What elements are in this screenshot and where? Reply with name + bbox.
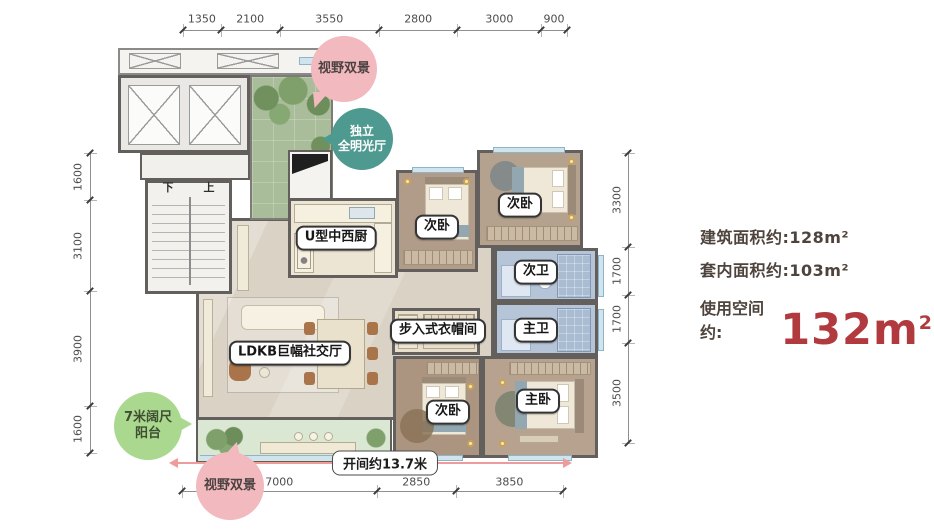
bench: [519, 435, 559, 443]
side-table: [259, 367, 270, 378]
headboard: [568, 165, 576, 215]
badge-bright-hall: 独立 全明光厅: [331, 108, 393, 170]
dim-label-bottom-1: 2850: [402, 476, 430, 489]
vent-box-icon: [129, 53, 181, 69]
dim-label-top-3: 2800: [404, 13, 432, 26]
window: [493, 147, 565, 153]
span-arrow-right-icon: [563, 458, 572, 468]
badge-view-bottom: 视野双景: [196, 452, 264, 520]
dim-label-left-0: 1600: [72, 163, 85, 191]
usage-label: 使用空间约:: [700, 295, 780, 349]
dining-chair: [367, 372, 378, 385]
badge-balcony-line1: 7米阔尺: [124, 410, 172, 426]
dim-label-bottom-2: 3850: [495, 476, 523, 489]
pillow: [552, 191, 564, 208]
dim-label-right-1: 1700: [611, 257, 624, 285]
dim-label-bottom-0: 7000: [265, 476, 293, 489]
kitchen-counter-top: [294, 204, 392, 223]
inner-area-value: 103m²: [789, 261, 849, 280]
label-bedroom-top-right: 次卧: [498, 193, 542, 218]
label-bedroom-top-mid: 次卧: [415, 215, 459, 240]
dining-chair: [304, 322, 315, 335]
downlight-icon: [463, 178, 470, 185]
window: [598, 255, 604, 297]
dim-line-right: [628, 153, 629, 443]
stair-up-label: 上: [204, 179, 215, 195]
shelf: [237, 225, 249, 291]
downlight-icon: [568, 158, 575, 165]
downlight-icon: [404, 178, 411, 185]
wardrobe: [426, 362, 479, 375]
label-bath-master: 主卫: [514, 318, 558, 343]
dim-label-right-2: 1700: [611, 305, 624, 333]
pillow: [445, 386, 459, 398]
window: [412, 167, 464, 173]
area-row: 建筑面积约:128m²: [700, 224, 932, 248]
inner-area-label: 套内面积约:: [700, 261, 789, 280]
pillow: [426, 386, 440, 398]
dining-chair: [304, 372, 315, 385]
label-kitchen: U型中西厨: [296, 226, 377, 251]
dim-label-top-5: 900: [544, 13, 565, 26]
pillow: [552, 170, 564, 187]
duct-room: [288, 150, 332, 200]
dim-label-top-4: 3000: [485, 13, 513, 26]
stairwell: [145, 180, 232, 294]
area-value: 128m²: [789, 228, 849, 247]
wardrobe: [509, 362, 591, 375]
area-label: 建筑面积约:: [700, 228, 789, 247]
tv-cabinet: [203, 299, 213, 397]
dim-label-top-0: 1350: [188, 13, 216, 26]
shower: [557, 254, 591, 298]
elevator-shaft-icon: [189, 85, 241, 145]
dim-label-top-1: 2100: [236, 13, 264, 26]
dim-label-right-3: 3500: [611, 379, 624, 407]
dim-label-left-1: 3100: [72, 232, 85, 260]
downlight-icon: [499, 440, 506, 447]
badge-view-top: 视野双景: [311, 36, 377, 102]
shower: [557, 308, 591, 352]
dining-chair: [367, 347, 378, 360]
cup: [324, 432, 333, 441]
dim-label-left-3: 1600: [72, 415, 85, 443]
kitchen-counter-right: [374, 223, 392, 273]
window: [598, 309, 604, 351]
pillow: [448, 187, 462, 200]
vent-strip: [118, 48, 333, 75]
inner-area-row: 套内面积约:103m²: [700, 257, 932, 281]
badge-view-bottom-text: 视野双景: [204, 478, 256, 494]
wardrobe: [486, 226, 578, 241]
downlight-icon: [467, 440, 474, 447]
badge-balcony: 7米阔尺 阳台: [114, 392, 182, 460]
pillow: [429, 187, 443, 200]
badge-view-top-text: 视野双景: [318, 61, 370, 77]
dining-chair: [367, 322, 378, 335]
floor-plan-page: 下 上: [0, 0, 934, 529]
cup: [294, 432, 303, 441]
downlight-icon: [568, 214, 575, 221]
dim-label-top-2: 3550: [315, 13, 343, 26]
downlight-icon: [499, 379, 506, 386]
badge-bright-hall-line2: 全明光厅: [338, 139, 386, 154]
entry-hall: [140, 153, 250, 180]
kitchen-sink: [349, 207, 375, 219]
wardrobe: [403, 250, 473, 265]
downlight-icon: [467, 383, 474, 390]
info-panel: 建筑面积约:128m² 套内面积约:103m² 使用空间约: 132m 2: [700, 224, 932, 349]
label-bath-second: 次卫: [514, 260, 558, 285]
usage-sup: 2: [919, 314, 932, 333]
vent-box-icon: [217, 53, 279, 69]
headboard: [575, 379, 584, 433]
stair-divider: [189, 197, 191, 285]
dim-label-left-2: 3900: [72, 335, 85, 363]
usage-value: 132m: [780, 312, 919, 349]
label-bedroom-master: 主卧: [516, 389, 560, 414]
dim-label-right-0: 3300: [611, 186, 624, 214]
label-bedroom-bottom: 次卧: [426, 400, 470, 425]
label-living: LDKB巨幅社交厅: [229, 341, 351, 366]
usage-row: 使用空间约: 132m 2: [700, 295, 932, 349]
cup: [309, 432, 318, 441]
stair-down-label: 下: [163, 179, 174, 195]
plant: [364, 428, 388, 448]
duct-shaft: [292, 154, 328, 174]
badge-bright-hall-line1: 独立: [350, 124, 374, 139]
span-label: 开间约13.7米: [332, 451, 438, 476]
elevator-shaft-icon: [128, 85, 180, 145]
label-closet: 步入式衣帽间: [390, 319, 486, 344]
span-arrow-left-icon: [169, 458, 178, 468]
elevator-block: [118, 75, 250, 153]
badge-balcony-line2: 阳台: [135, 426, 161, 442]
